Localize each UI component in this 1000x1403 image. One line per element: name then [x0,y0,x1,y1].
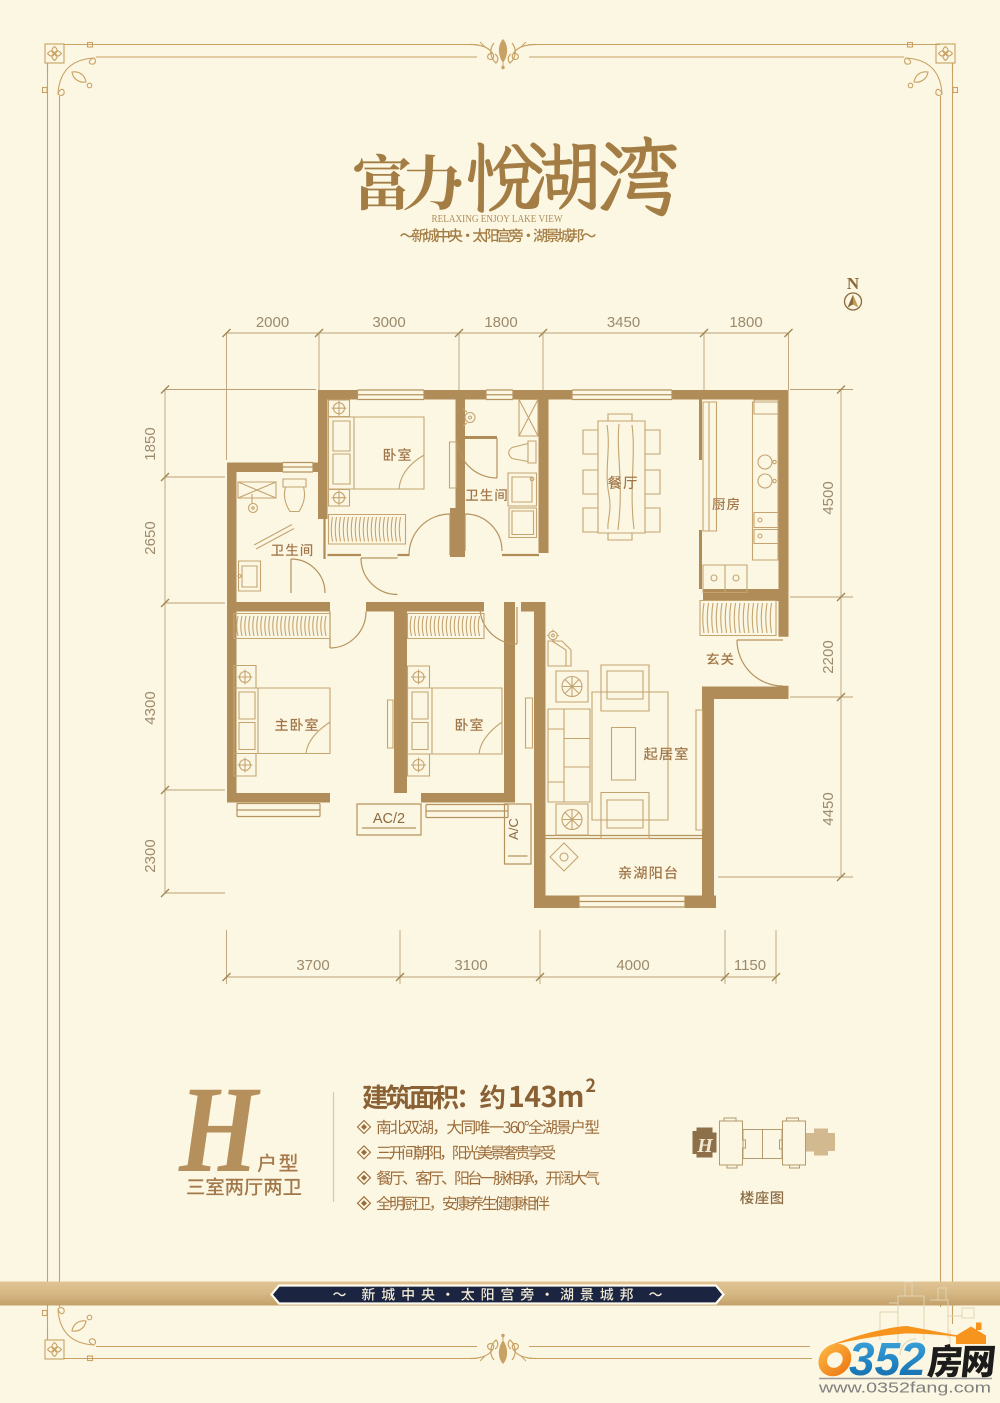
svg-text:2650: 2650 [142,521,159,554]
svg-text:3450: 3450 [607,314,640,331]
svg-text:3700: 3700 [296,957,329,974]
svg-text:A/C: A/C [506,818,521,840]
svg-text:3000: 3000 [372,314,405,331]
svg-text:1850: 1850 [142,427,159,460]
svg-text:1150: 1150 [734,957,766,974]
svg-text:1800: 1800 [729,314,762,331]
svg-text:H: H [178,1061,261,1199]
svg-text:AC/2: AC/2 [373,811,405,827]
svg-text:352: 352 [849,1333,926,1385]
svg-text:3100: 3100 [454,957,487,974]
svg-text:4500: 4500 [820,481,837,514]
svg-text:1800: 1800 [484,314,517,331]
svg-text:4300: 4300 [142,691,159,724]
svg-text:RELAXING ENJOY LAKE VIEW: RELAXING ENJOY LAKE VIEW [432,214,563,225]
svg-text:4450: 4450 [820,792,837,825]
svg-text:N: N [847,274,860,293]
svg-text:2000: 2000 [256,314,289,331]
svg-text:4000: 4000 [616,957,649,974]
svg-text:H: H [696,1135,714,1157]
svg-text:2300: 2300 [142,839,159,872]
svg-text:2200: 2200 [820,640,837,673]
svg-text:www.0352fang.com: www.0352fang.com [818,1381,991,1397]
